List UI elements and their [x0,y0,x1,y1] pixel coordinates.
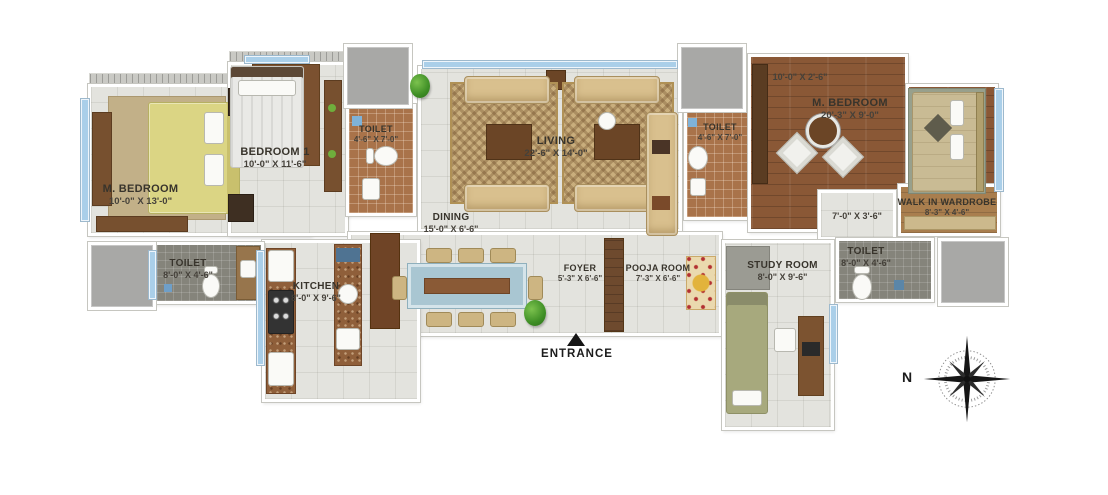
counter-mat [336,248,360,262]
window-strip [996,90,1002,190]
pillow [732,390,762,406]
compass-rose-icon [920,332,1014,426]
deck-dim-label: 10'-0" X 2'-6" [762,72,838,83]
entrance-label: ENTRANCE [534,348,620,360]
window-strip [258,252,263,364]
dining-chair [426,312,452,327]
room-label-toilet-3: TOILET 8'-0" X 4'-6" [150,258,226,280]
tile-accent [894,280,904,290]
wc-toilet [688,146,708,170]
pillow [950,134,964,160]
room-label-walk-in-wardrobe: WALK IN WARDROBE 8'-3" X 4'-6" [893,197,1001,217]
pillow [204,154,224,186]
room-label-m-bedroom-right: M. BEDROOM 20'-3" X 9'-0" [795,97,905,121]
sofa [574,76,660,104]
room-label-foyer: FOYER 5'-3" X 6'-6" [550,263,610,283]
sofa [464,76,550,104]
window-strip [831,306,836,362]
window-strip [424,62,676,67]
service-ledge [938,238,1008,306]
double-bed [912,92,978,192]
plant-icon [524,300,546,326]
room-label-dining: DINING 15'-0" X 6'-6" [416,212,486,234]
study-desk [798,316,824,396]
room-label-kitchen: KITCHEN 8'-0" X 9'-6" [276,281,356,303]
washbasin [362,178,380,200]
dining-chair [426,248,452,263]
washbasin [240,260,256,278]
fridge [268,250,294,282]
appliance [336,328,360,350]
nightstand [228,194,254,222]
dining-chair [458,312,484,327]
dining-chair [490,312,516,327]
room-label-m-bedroom-left: M. BEDROOM 10'-0" X 13'-0" [88,183,193,207]
dining-chair [392,276,407,300]
north-label: N [902,369,912,385]
wardrobe-shelf [904,216,996,230]
sofa [464,184,550,212]
room-label-toilet-4: TOILET 8'-0" X 4'-6" [826,246,906,268]
window-strip [246,57,308,62]
wc-toilet [374,146,398,166]
pillow [950,100,964,126]
plant-icon [410,74,430,98]
pillow [204,112,224,144]
entrance-arrow-icon [567,333,585,346]
wardrobe [324,80,342,192]
service-ledge [88,242,156,310]
wc-toilet [852,274,872,300]
floor-lamp [598,112,616,130]
duct-shaft [344,44,412,108]
pillow [238,80,296,96]
room-label-pooja-room: POOJA ROOM 7'-3" X 6'-6" [618,263,698,283]
room-label-bedroom-1: BEDROOM 1 10'-0" X 11'-6" [225,146,325,170]
tile-accent [164,284,172,292]
room-label-study-room: STUDY ROOM 8'-0" X 9'-6" [735,260,830,282]
dining-chair [490,248,516,263]
bench-unit [646,112,678,236]
room-label-living: LIVING 22'-6" X 14'-0" [506,135,606,159]
desk-chair [774,328,796,352]
plant-icon [328,104,336,112]
decor-item [652,140,670,154]
duct-shaft [678,44,746,112]
headboard [976,92,984,192]
appliance [268,352,294,386]
floor-plan: M. BEDROOM 10'-0" X 13'-0" BEDROOM 1 10'… [0,0,1108,495]
passage-dim-label: 7'-0" X 3'-6" [822,211,892,222]
door-panel [604,238,624,332]
table-runner [424,278,510,294]
dining-chair [528,276,543,300]
room-label-toilet-2: TOILET 4'-6" X 7'-0" [688,122,752,142]
washbasin [690,178,706,196]
dining-chair [458,248,484,263]
laptop [802,342,820,356]
wc-tank [366,148,374,164]
decor-item [652,196,670,210]
plant-icon [328,150,336,158]
room-label-toilet-1: TOILET 4'-6" X 7'-0" [344,124,408,144]
dresser [96,216,188,232]
